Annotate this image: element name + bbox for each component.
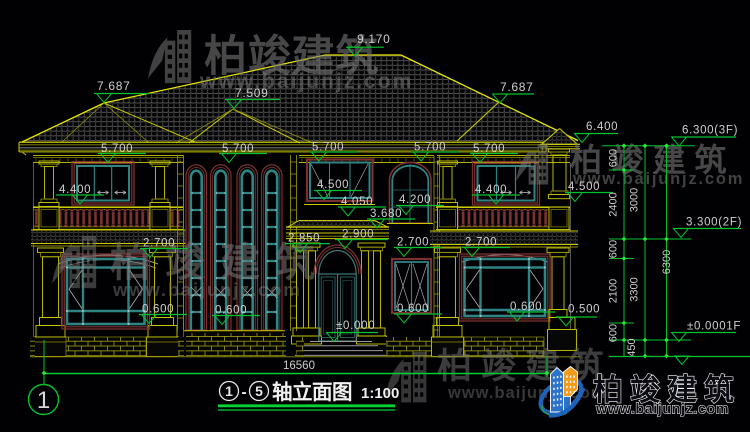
svg-text:3000: 3000: [629, 188, 641, 212]
svg-text:16560: 16560: [283, 360, 315, 372]
svg-text:2.700: 2.700: [143, 238, 175, 250]
svg-text:0.600: 0.600: [397, 303, 429, 315]
svg-text:2100: 2100: [608, 279, 620, 303]
svg-text:www.baijunjz.com: www.baijunjz.com: [595, 402, 729, 418]
svg-text:5: 5: [255, 383, 263, 399]
svg-text:柏竣建筑: 柏竣建筑: [437, 346, 613, 386]
svg-text:6.400: 6.400: [586, 121, 618, 133]
svg-text:7.687: 7.687: [97, 79, 131, 93]
svg-text:6.300(3F): 6.300(3F): [682, 125, 738, 137]
svg-text:600: 600: [608, 324, 620, 342]
svg-text:1:100: 1:100: [361, 385, 399, 402]
svg-text:-: -: [241, 384, 246, 401]
svg-text:±0.000: ±0.000: [336, 320, 375, 332]
svg-text:www.baijunjz.com: www.baijunjz.com: [112, 279, 301, 300]
svg-text:1: 1: [37, 387, 50, 414]
svg-text:4.400: 4.400: [59, 184, 91, 196]
svg-text:7.509: 7.509: [235, 86, 269, 100]
svg-text:0.600: 0.600: [142, 304, 174, 316]
svg-text:3.680: 3.680: [370, 208, 402, 220]
svg-text:3.300(2F): 3.300(2F): [686, 217, 742, 229]
svg-text:www.baijunjz.com: www.baijunjz.com: [199, 70, 413, 93]
svg-text:±0.0001F: ±0.0001F: [687, 321, 741, 333]
svg-text:2.900: 2.900: [342, 229, 374, 241]
svg-text:450: 450: [626, 338, 638, 356]
svg-text:2.700: 2.700: [397, 237, 429, 249]
svg-text:0.600: 0.600: [510, 301, 542, 313]
svg-text:4.200: 4.200: [399, 194, 431, 206]
svg-text:4.500: 4.500: [317, 179, 349, 191]
svg-text:7.687: 7.687: [500, 80, 534, 94]
svg-text:轴立面图: 轴立面图: [272, 380, 352, 404]
svg-text:4.500: 4.500: [568, 181, 600, 193]
svg-text:9.170: 9.170: [357, 32, 391, 46]
svg-text:3300: 3300: [629, 277, 641, 301]
svg-text:1: 1: [225, 383, 233, 399]
svg-text:4.050: 4.050: [341, 196, 373, 208]
svg-text:2.850: 2.850: [288, 233, 320, 245]
svg-text:0.600: 0.600: [215, 305, 247, 317]
svg-text:4.400: 4.400: [475, 184, 507, 196]
svg-text:600: 600: [608, 240, 620, 258]
svg-text:600: 600: [608, 149, 620, 167]
svg-text:2.700: 2.700: [465, 237, 497, 249]
svg-text:6300: 6300: [661, 250, 673, 274]
svg-text:2400: 2400: [608, 192, 620, 216]
svg-text:0.500: 0.500: [568, 304, 600, 316]
